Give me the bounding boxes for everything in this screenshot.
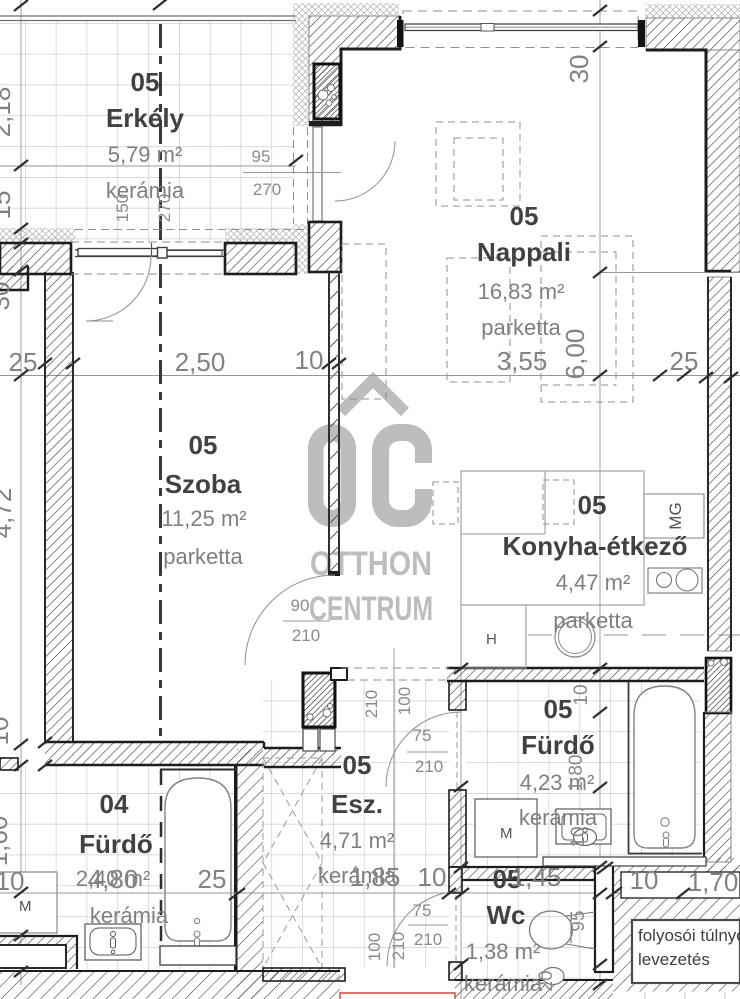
svg-text:5,79 m²: 5,79 m² [108, 142, 183, 167]
svg-text:20: 20 [536, 970, 557, 991]
svg-text:M: M [19, 898, 32, 915]
svg-text:kerámia: kerámia [90, 903, 169, 928]
svg-text:100: 100 [365, 933, 384, 961]
svg-text:4,80: 4,80 [88, 864, 139, 894]
svg-text:6,00: 6,00 [560, 329, 590, 380]
svg-text:parketta: parketta [163, 544, 243, 569]
svg-text:270: 270 [155, 194, 174, 222]
svg-text:10: 10 [418, 862, 447, 892]
svg-text:05: 05 [131, 67, 160, 97]
svg-text:Fürdő: Fürdő [79, 829, 153, 859]
svg-text:75: 75 [413, 901, 432, 920]
svg-text:Esz.: Esz. [331, 789, 383, 819]
svg-text:11,25 m²: 11,25 m² [161, 506, 246, 531]
svg-text:M: M [500, 825, 513, 842]
svg-text:05: 05 [544, 694, 573, 724]
svg-text:1,38 m²: 1,38 m² [466, 939, 541, 964]
svg-text:4,47 m²: 4,47 m² [556, 570, 631, 595]
svg-text:30: 30 [0, 282, 15, 311]
svg-text:270: 270 [253, 180, 281, 199]
svg-text:25: 25 [670, 346, 699, 376]
svg-text:10: 10 [295, 345, 324, 375]
svg-text:100: 100 [395, 687, 414, 715]
svg-text:95: 95 [568, 910, 589, 931]
svg-text:CENTRUM: CENTRUM [309, 590, 433, 628]
svg-text:Wc: Wc [487, 900, 526, 930]
svg-text:150: 150 [113, 194, 132, 222]
svg-text:25: 25 [198, 864, 227, 894]
svg-text:05: 05 [510, 201, 539, 231]
svg-text:05: 05 [343, 750, 372, 780]
svg-text:Konyha-étkező: Konyha-étkező [503, 531, 688, 561]
svg-text:4,71 m²: 4,71 m² [320, 828, 395, 853]
svg-text:parketta: parketta [481, 315, 561, 340]
svg-text:30: 30 [564, 55, 594, 84]
svg-text:10: 10 [630, 865, 659, 895]
svg-text:kerámia: kerámia [519, 805, 598, 830]
svg-text:1,80: 1,80 [566, 755, 587, 792]
svg-text:90: 90 [291, 596, 310, 615]
svg-text:05: 05 [578, 490, 607, 520]
svg-text:1,60: 1,60 [0, 816, 13, 867]
svg-text:kerámia: kerámia [464, 971, 543, 996]
svg-text:16,83 m²: 16,83 m² [478, 279, 565, 304]
svg-text:MG: MG [666, 502, 685, 529]
svg-text:4,72: 4,72 [0, 488, 17, 539]
svg-text:75: 75 [413, 726, 432, 745]
svg-text:05: 05 [189, 430, 218, 460]
svg-text:1,85: 1,85 [350, 862, 401, 892]
svg-text:04: 04 [100, 789, 129, 819]
svg-text:210: 210 [362, 690, 381, 718]
svg-text:210: 210 [389, 932, 408, 960]
svg-text:210: 210 [292, 626, 320, 645]
svg-text:H: H [486, 631, 497, 648]
svg-text:1,45: 1,45 [511, 862, 562, 892]
svg-text:2,18: 2,18 [0, 87, 16, 138]
svg-text:3,55: 3,55 [497, 346, 548, 376]
svg-text:levezetés: levezetés [638, 950, 710, 969]
svg-text:10: 10 [568, 826, 589, 847]
svg-text:210: 210 [414, 930, 442, 949]
svg-text:Erkély: Erkély [106, 103, 185, 133]
svg-text:Nappali: Nappali [477, 237, 571, 267]
svg-text:10: 10 [571, 684, 592, 705]
svg-text:95: 95 [252, 147, 271, 166]
svg-text:parketta: parketta [553, 608, 633, 633]
svg-text:2,50: 2,50 [175, 347, 226, 377]
svg-text:210: 210 [415, 757, 443, 776]
svg-text:15: 15 [0, 191, 16, 220]
svg-text:10: 10 [0, 717, 14, 746]
svg-text:1,70: 1,70 [688, 867, 739, 897]
svg-text:Szoba: Szoba [165, 469, 242, 499]
svg-text:folyosói túlnyo: folyosói túlnyo [638, 926, 740, 945]
